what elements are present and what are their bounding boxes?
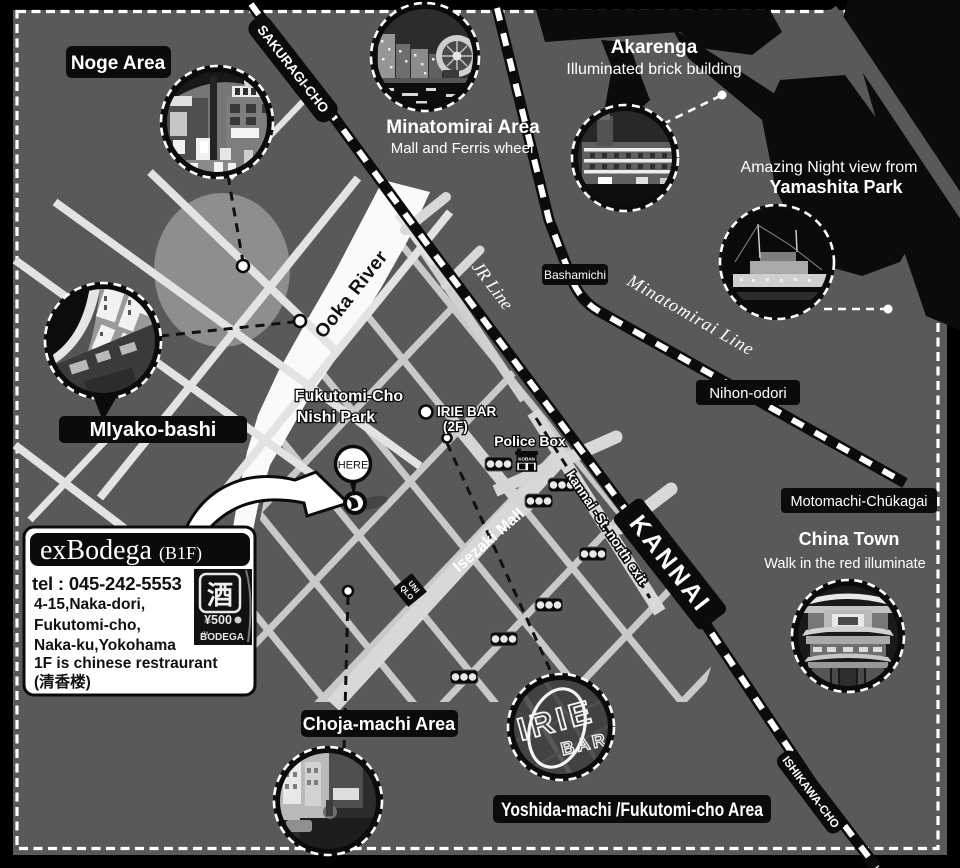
svg-text:Bashamichi: Bashamichi (544, 268, 606, 282)
svg-text:Naka-ku,Yokohama: Naka-ku,Yokohama (34, 637, 176, 654)
svg-text:Choja-machi Area: Choja-machi Area (303, 714, 456, 734)
svg-text:HERE: HERE (338, 460, 369, 472)
svg-text:Amazing Night view from: Amazing Night view from (741, 159, 918, 176)
svg-text:Fukutomi-cho,: Fukutomi-cho, (34, 617, 141, 634)
svg-text:Minatomirai Area: Minatomirai Area (386, 117, 540, 138)
svg-text:Akarenga: Akarenga (611, 37, 698, 58)
svg-text:Yoshida-machi /Fukutomi-cho Ar: Yoshida-machi /Fukutomi-cho Area (501, 800, 763, 821)
svg-text:KOBAN: KOBAN (518, 457, 535, 462)
svg-text:tel : 045-242-5553: tel : 045-242-5553 (32, 573, 182, 594)
svg-text:4-15,Naka-dori,: 4-15,Naka-dori, (34, 596, 145, 613)
svg-text:Police Box: Police Box (494, 433, 566, 449)
svg-text:Nihon-odori: Nihon-odori (709, 385, 787, 402)
svg-text:Nishi Park: Nishi Park (297, 409, 375, 426)
svg-text:MIyako-bashi: MIyako-bashi (90, 419, 217, 441)
svg-text:Fukutomi-Cho: Fukutomi-Cho (295, 388, 404, 405)
svg-text:Mall and Ferris wheel: Mall and Ferris wheel (391, 140, 534, 157)
svg-text:China Town: China Town (799, 529, 900, 549)
svg-text:Noge Area: Noge Area (71, 53, 166, 74)
svg-text:Motomachi-Chūkagai: Motomachi-Chūkagai (790, 494, 927, 510)
svg-text:酒: 酒 (207, 580, 233, 610)
svg-text:1F is chinese restraurant: 1F is chinese restraurant (34, 655, 218, 672)
svg-text:(清香楼): (清香楼) (34, 672, 91, 691)
svg-text:Yamashita Park: Yamashita Park (769, 177, 903, 197)
svg-text:Walk in the red illuminate: Walk in the red illuminate (764, 556, 925, 572)
svg-text:IRIE BAR: IRIE BAR (437, 404, 497, 419)
svg-text:BODEGA: BODEGA (200, 632, 244, 643)
svg-text:¥500: ¥500 (204, 613, 232, 627)
svg-text:Illuminated brick building: Illuminated brick building (566, 61, 741, 78)
svg-text:(2F): (2F) (443, 419, 468, 434)
